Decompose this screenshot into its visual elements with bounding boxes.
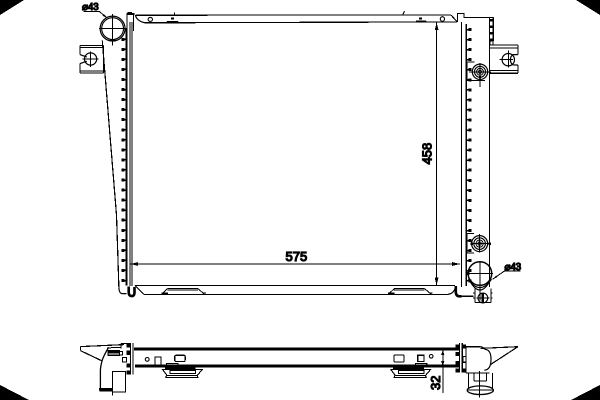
svg-text:32: 32 [428, 376, 443, 390]
svg-text:458: 458 [420, 143, 435, 165]
svg-text:575: 575 [286, 249, 308, 264]
